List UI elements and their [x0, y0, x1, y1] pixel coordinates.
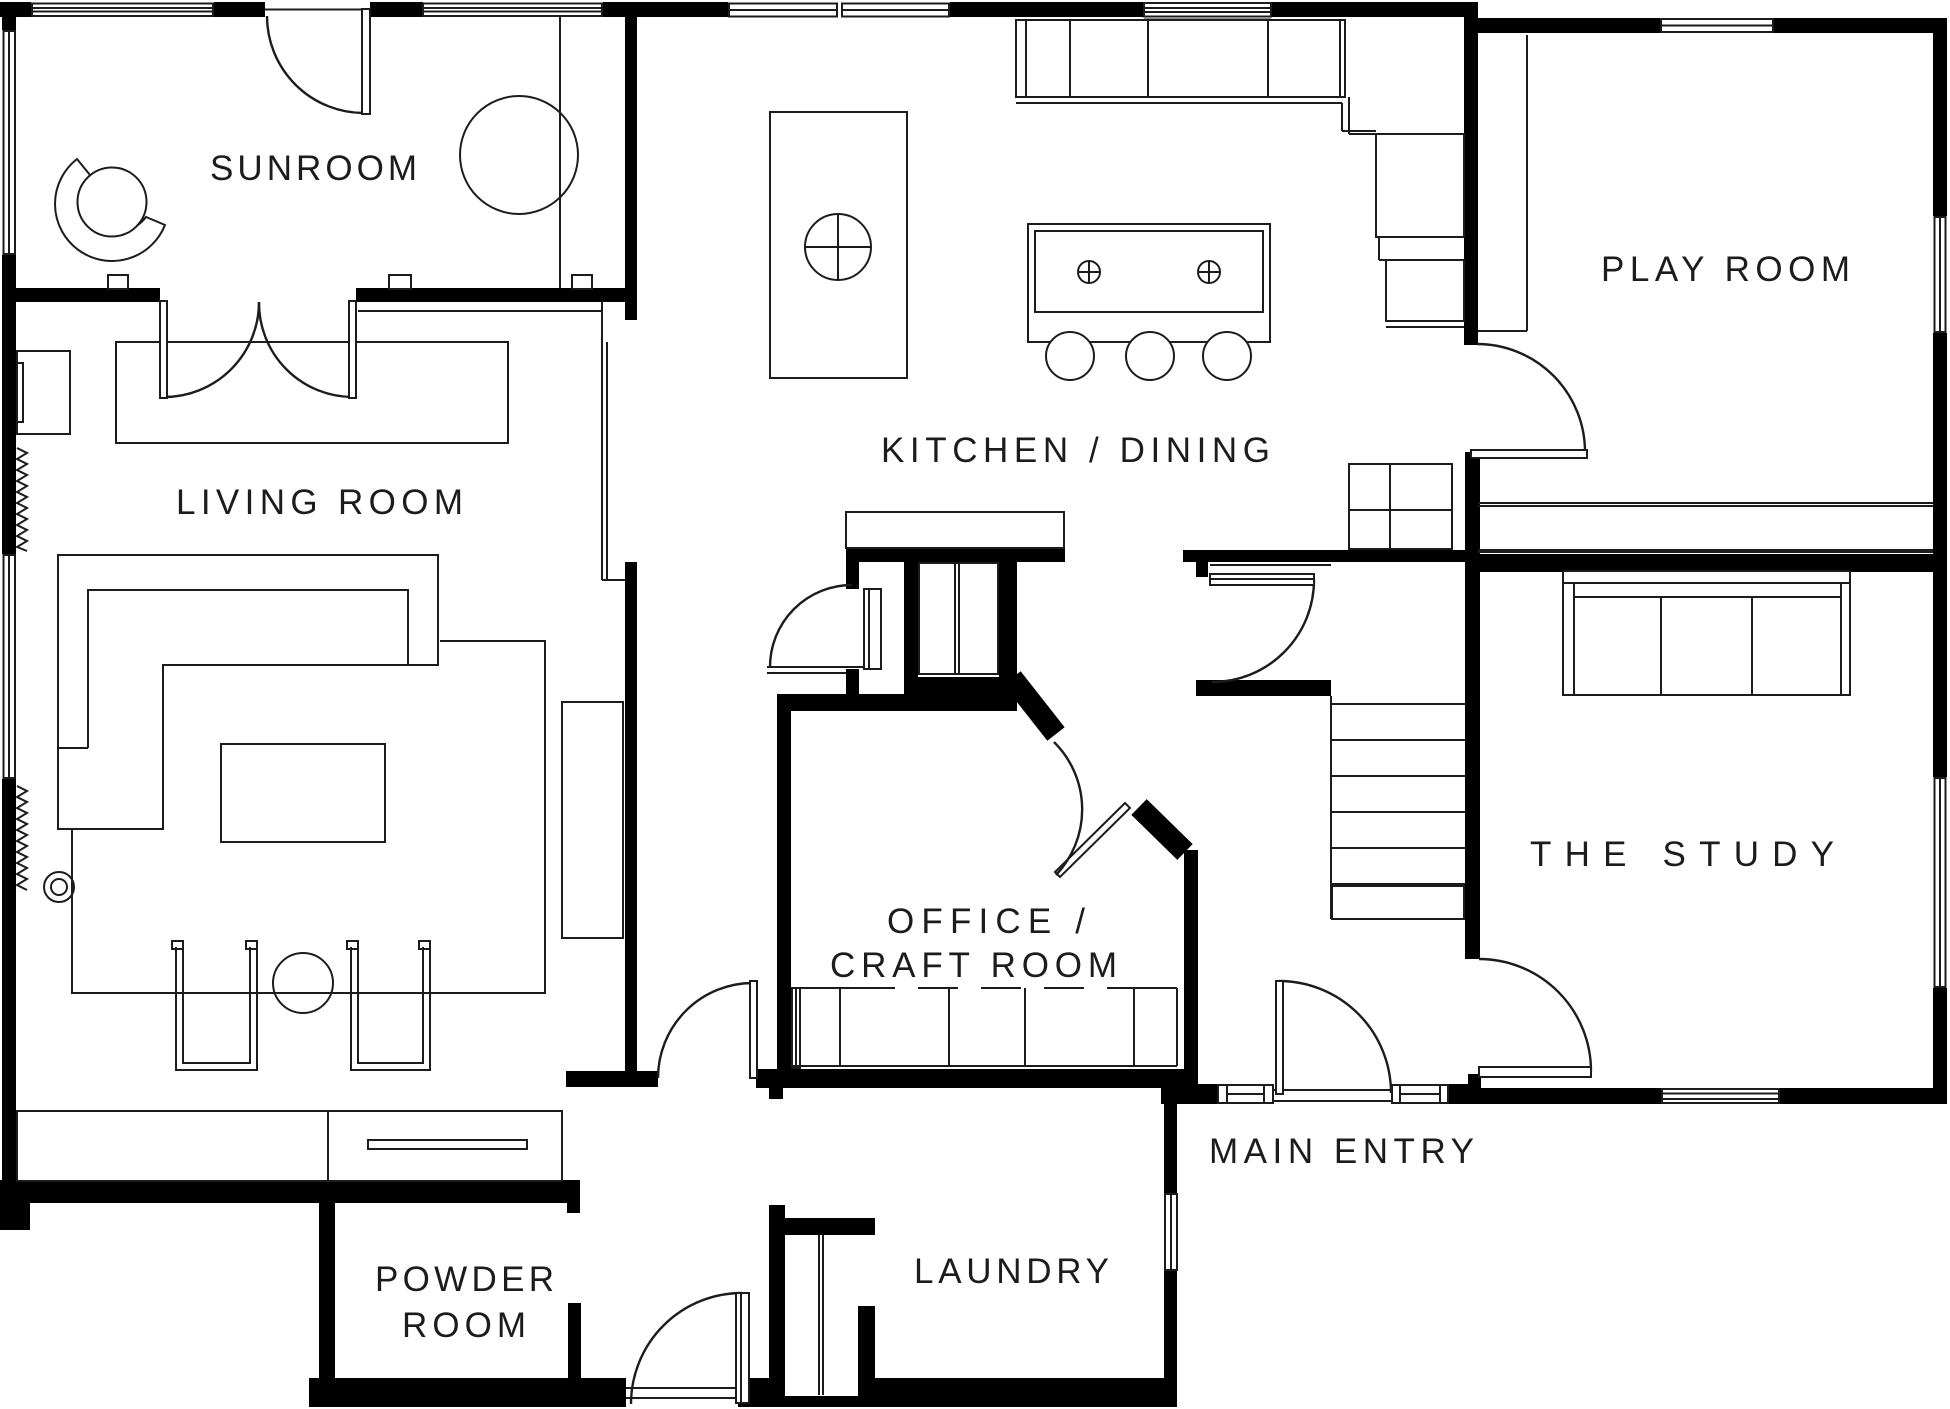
- svg-text:LAUNDRY: LAUNDRY: [914, 1252, 1109, 1291]
- svg-text:MAIN ENTRY: MAIN ENTRY: [1209, 1132, 1474, 1171]
- svg-text:KITCHEN / DINING: KITCHEN / DINING: [881, 431, 1270, 470]
- svg-text:THE STUDY: THE STUDY: [1530, 835, 1834, 874]
- svg-text:PLAY ROOM: PLAY ROOM: [1601, 250, 1850, 289]
- svg-text:ROOM: ROOM: [402, 1306, 526, 1345]
